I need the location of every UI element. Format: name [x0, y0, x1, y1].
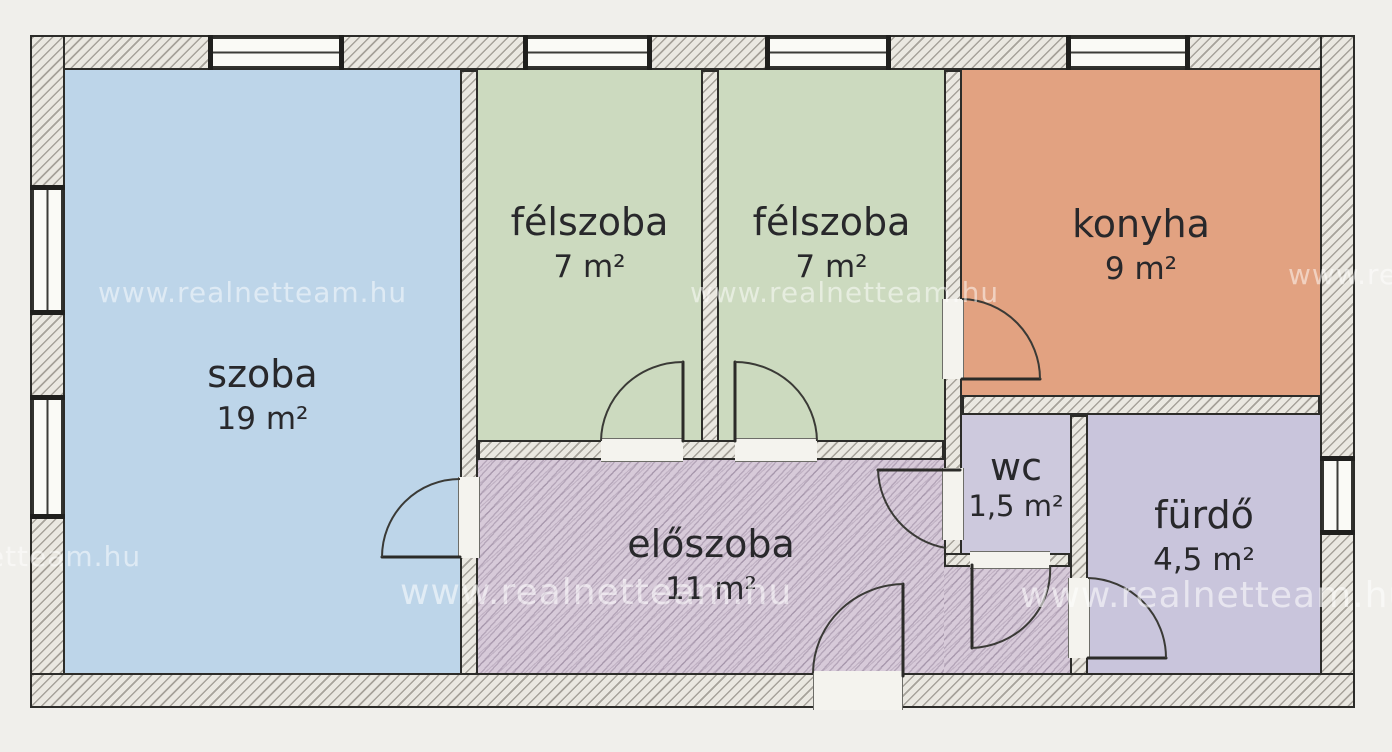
room-eloszoba-corridor [944, 567, 1070, 675]
room-label-konyha: konyha [962, 202, 1320, 246]
room-label-wc: wc [962, 445, 1070, 489]
room-area-eloszoba: 11 m² [478, 570, 944, 608]
room-labelbox-felszoba-2: félszoba 7 m² [719, 200, 944, 286]
room-furdo: fürdő 4,5 m² [1088, 415, 1320, 675]
window-szoba-top [210, 37, 342, 68]
opening-konyha-door [942, 299, 964, 379]
room-labelbox-eloszoba: előszoba 11 m² [478, 522, 944, 608]
room-konyha: konyha 9 m² [962, 70, 1320, 395]
room-eloszoba: előszoba 11 m² [478, 460, 944, 675]
window-konyha-top [1068, 37, 1188, 68]
opening-corridor-door [970, 551, 1050, 569]
floor-plan: szoba 19 m² félszoba 7 m² félszoba 7 m² … [0, 0, 1392, 752]
room-area-szoba: 19 m² [65, 400, 460, 438]
window-furdo-right [1322, 458, 1353, 533]
room-label-felszoba-2: félszoba [719, 200, 944, 244]
room-labelbox-konyha: konyha 9 m² [962, 202, 1320, 288]
wall-szoba-divider [460, 70, 478, 675]
wall-right [1320, 35, 1355, 708]
window-felszoba-1-top [525, 37, 650, 68]
room-wc: wc 1,5 m² [962, 415, 1070, 553]
room-labelbox-wc: wc 1,5 m² [962, 445, 1070, 525]
window-szoba-left-lower [32, 397, 63, 517]
opening-szoba-door [458, 477, 480, 558]
opening-wc-door [942, 468, 964, 540]
opening-entrance-door [813, 671, 903, 710]
room-area-furdo: 4,5 m² [1088, 541, 1320, 579]
wall-left [30, 35, 65, 708]
wall-konyha-bottom [962, 395, 1320, 415]
room-area-konyha: 9 m² [962, 250, 1320, 288]
room-area-felszoba-2: 7 m² [719, 248, 944, 286]
opening-furdo-door [1068, 578, 1090, 658]
wall-eloszoba-top [478, 440, 944, 460]
room-label-szoba: szoba [65, 352, 460, 396]
room-labelbox-felszoba-1: félszoba 7 m² [478, 200, 701, 286]
window-felszoba-2-top [767, 37, 889, 68]
opening-felszoba-1-door [601, 438, 683, 462]
wall-felszoba-divider [701, 70, 719, 460]
room-szoba: szoba 19 m² [65, 70, 460, 675]
opening-felszoba-2-door [735, 438, 817, 462]
room-label-felszoba-1: félszoba [478, 200, 701, 244]
room-labelbox-szoba: szoba 19 m² [65, 352, 460, 438]
window-szoba-left-upper [32, 187, 63, 313]
room-labelbox-furdo: fürdő 4,5 m² [1088, 493, 1320, 579]
room-area-felszoba-1: 7 m² [478, 248, 701, 286]
room-felszoba-2: félszoba 7 m² [719, 70, 944, 440]
room-felszoba-1: félszoba 7 m² [478, 70, 701, 440]
room-area-wc: 1,5 m² [962, 487, 1070, 525]
wall-bottom [30, 673, 1355, 708]
room-label-eloszoba: előszoba [478, 522, 944, 566]
room-label-furdo: fürdő [1088, 493, 1320, 537]
